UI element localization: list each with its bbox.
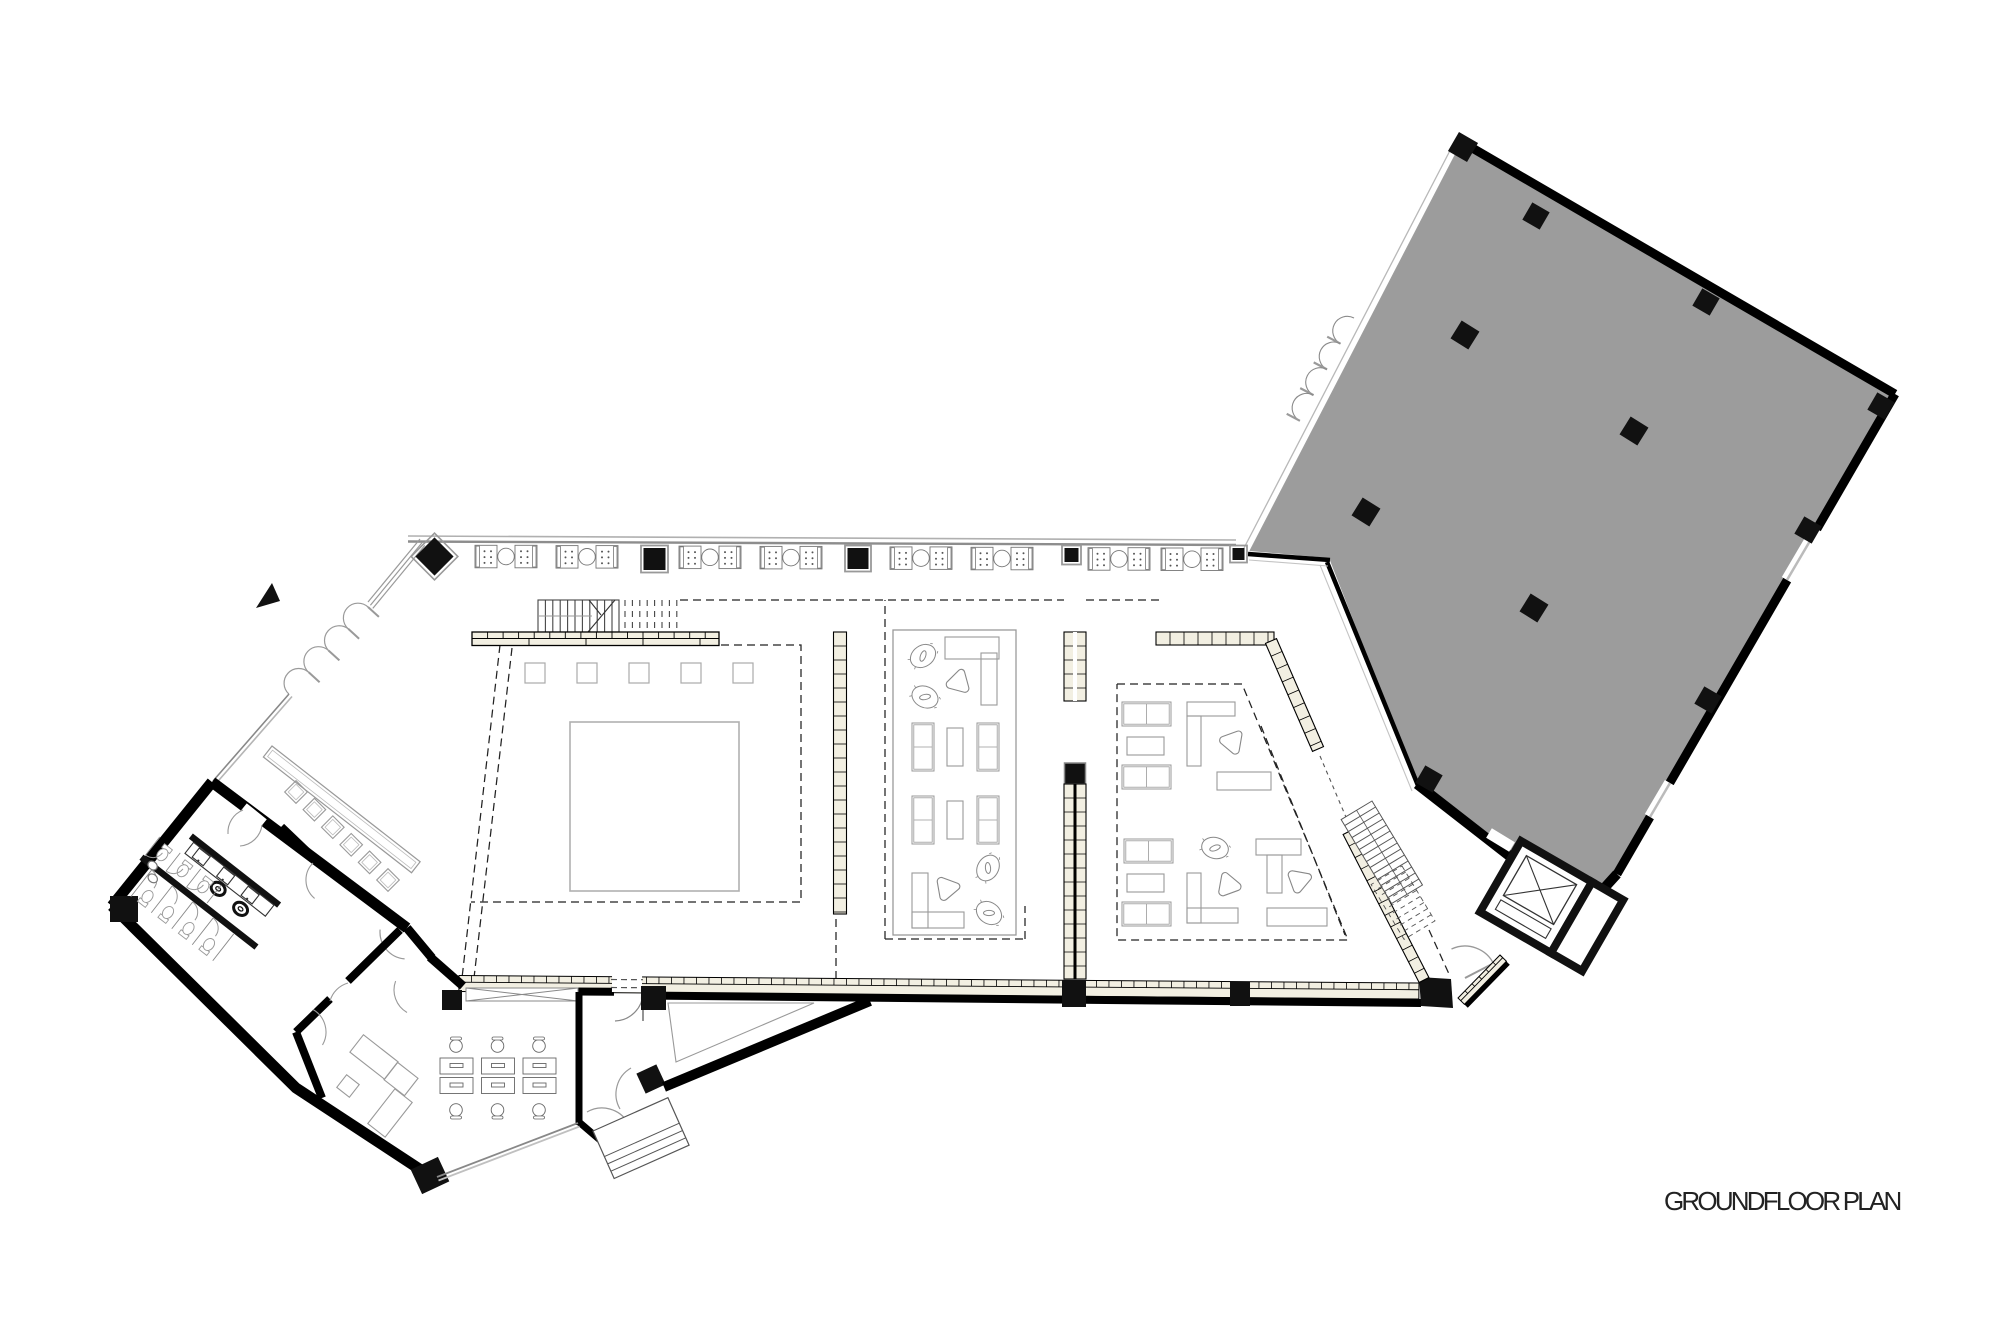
svg-text:GROUNDFLOOR PLAN: GROUNDFLOOR PLAN bbox=[1664, 1186, 1900, 1216]
